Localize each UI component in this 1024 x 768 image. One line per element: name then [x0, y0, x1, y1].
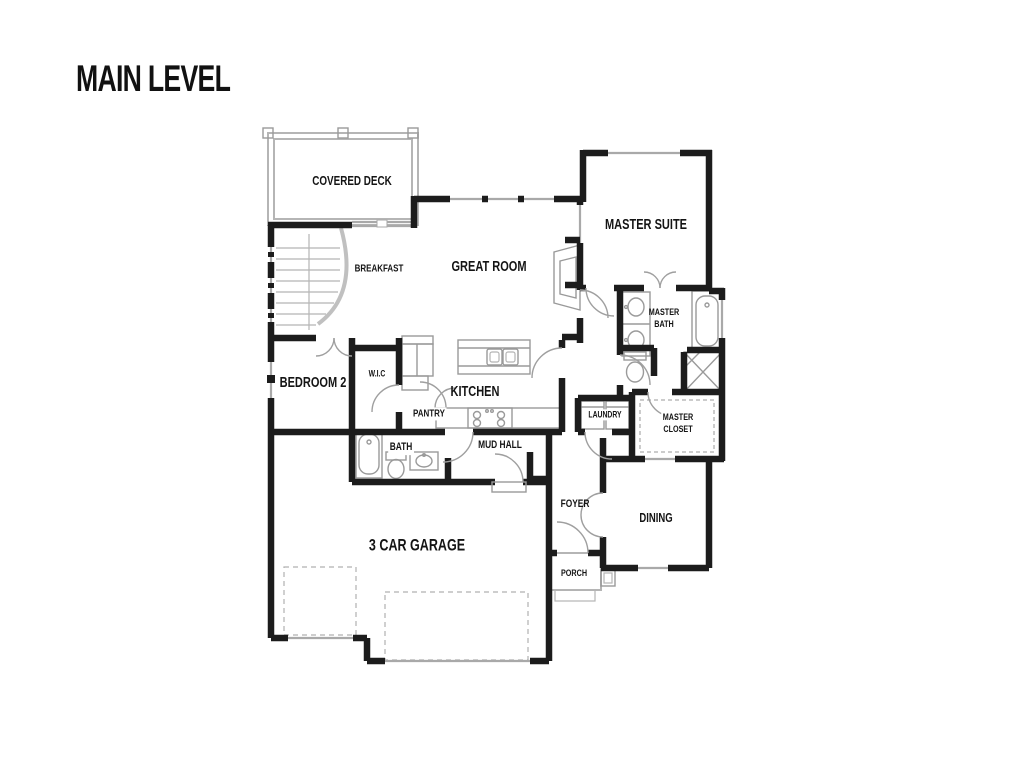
garage-car-spaces: [284, 567, 528, 660]
refrigerator-icon: [402, 336, 433, 390]
kitchen-island-icon: [458, 340, 530, 374]
room-label-covered-deck: COVERED DECK: [312, 173, 392, 189]
room-label-pantry: PANTRY: [412, 407, 447, 420]
kitchen-range-icon: [436, 408, 560, 428]
room-label-laundry: LAUNDRY: [587, 409, 623, 420]
room-label-mud-hall: MUD HALL: [478, 439, 522, 453]
room-label-master-closet: MASTER CLOSET: [661, 412, 695, 436]
fireplace-icon: [554, 245, 580, 310]
room-label-breakfast: BREAKFAST: [355, 262, 404, 275]
entry-steps: [492, 482, 526, 492]
room-label-bedroom-2: BEDROOM 2: [280, 374, 347, 392]
room-label-garage: 3 CAR GARAGE: [369, 536, 465, 557]
room-label-dining: DINING: [639, 511, 672, 527]
room-label-bath: BATH: [388, 441, 414, 455]
room-label-porch: PORCH: [559, 568, 588, 580]
room-label-wic: W.I.C: [369, 368, 386, 379]
floor-plan-page: MAIN LEVEL COVERED DECK BREAKFAST GREAT …: [0, 0, 1024, 768]
room-label-kitchen: KITCHEN: [451, 383, 500, 401]
room-label-master-bath: MASTER BATH: [649, 307, 679, 331]
room-label-great-room: GREAT ROOM: [451, 258, 526, 276]
page-title: MAIN LEVEL: [76, 58, 230, 100]
floor-plan-graphic: [0, 0, 1024, 768]
stairs-icon: [276, 228, 347, 330]
room-label-foyer: FOYER: [561, 498, 590, 512]
room-label-master-suite: MASTER SUITE: [605, 216, 687, 234]
